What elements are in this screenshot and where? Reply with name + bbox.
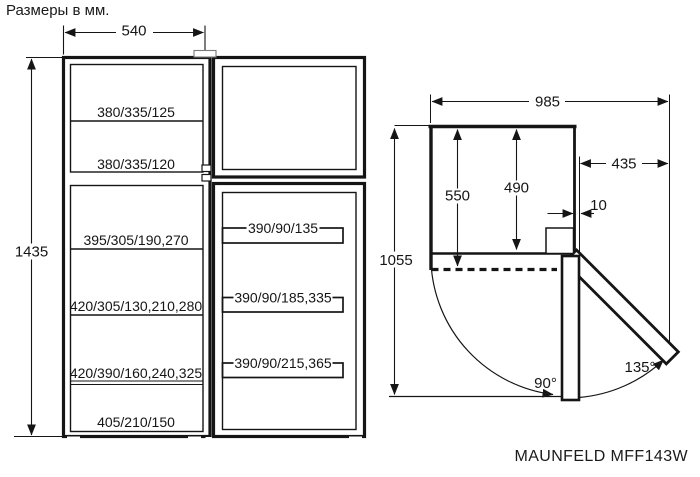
angle-90-label: 90° xyxy=(534,375,557,392)
fridge-shelf-label: 405/210/150 xyxy=(97,414,175,430)
foot xyxy=(67,437,80,443)
top-view: 1055 985 435 550 490 10 90° 135° xyxy=(377,94,679,401)
depth-without-door-value: 490 xyxy=(504,180,529,197)
freezer-door xyxy=(214,58,365,178)
fridge-shelf-label: 395/305/190,270 xyxy=(83,232,188,248)
fridge-compartment: 395/305/190,270 420/305/130,210,280 420/… xyxy=(70,186,203,432)
middle-hinge xyxy=(202,165,211,172)
width-value: 540 xyxy=(121,23,146,40)
height-value: 1435 xyxy=(15,244,48,261)
middle-hinge xyxy=(202,175,211,182)
total-width-value: 985 xyxy=(535,94,560,111)
door-protrusion-dimension xyxy=(548,205,595,227)
dimension-drawing: 540 1435 380/335/125 xyxy=(0,0,700,477)
door-shelf-label: 390/90/135 xyxy=(248,220,318,236)
spec-sheet: Размеры в мм. 540 1435 xyxy=(0,0,700,477)
foot xyxy=(188,437,201,443)
depth-with-door-value: 550 xyxy=(445,188,470,205)
angle-135-label: 135° xyxy=(624,359,655,376)
freezer-shelf-label: 380/335/120 xyxy=(97,156,175,172)
width-dimension: 540 xyxy=(64,23,206,55)
model-label: MAUNFELD MFF143W xyxy=(514,448,688,466)
door-clearance-value: 435 xyxy=(611,156,636,173)
hinge-detail-box xyxy=(546,228,574,254)
foot xyxy=(349,437,362,443)
door-protrusion-value: 10 xyxy=(590,197,607,214)
freezer-shelf-label: 380/335/125 xyxy=(97,104,175,120)
fridge-shelf-label: 420/305/130,210,280 xyxy=(70,298,203,314)
front-view: 540 1435 380/335/125 xyxy=(12,23,365,443)
door-open-90 xyxy=(562,256,579,400)
door-shelf-label: 390/90/215,365 xyxy=(234,355,332,371)
freezer-compartment: 380/335/125 380/335/120 xyxy=(71,65,204,173)
fridge-door: 390/90/135 390/90/185,335 390/90/215,365 xyxy=(214,184,365,443)
freezer-door-outline xyxy=(214,58,365,178)
door-shelf-label: 390/90/185,335 xyxy=(234,290,332,306)
fridge-shelf-label: 420/390/160,240,325 xyxy=(70,365,203,381)
depth-open-value: 1055 xyxy=(379,252,412,269)
door-open-135 xyxy=(564,250,678,364)
freezer-door-inner-panel xyxy=(223,67,357,170)
top-hinge xyxy=(194,51,216,58)
